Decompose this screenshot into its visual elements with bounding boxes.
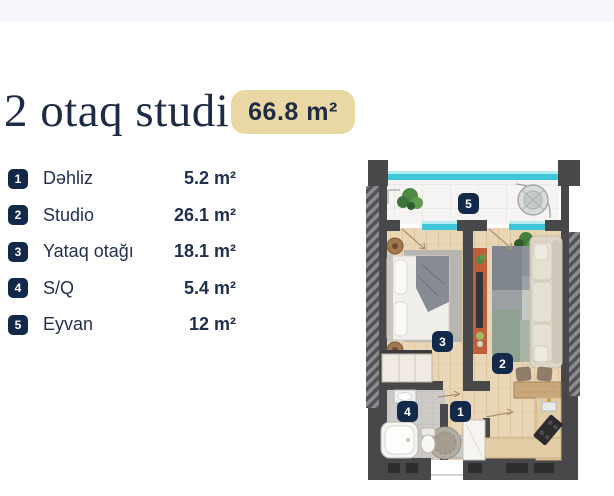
toilet	[421, 428, 435, 453]
entrance-threshold	[431, 474, 463, 476]
legend-area-2: 26.1 m²	[174, 205, 236, 226]
legend-row-yataq: 3 Yataq otağı 18.1 m²	[8, 241, 236, 262]
marker-eyvan: 5	[458, 193, 479, 214]
legend-area-5: 12 m²	[189, 314, 236, 335]
legend-label-1: Dəhliz	[43, 168, 93, 189]
floorplan: 5 3 2 4 1	[366, 160, 580, 480]
kitchen-sink	[542, 402, 556, 411]
legend-num-2: 2	[8, 205, 28, 225]
legend-area-3: 18.1 m²	[174, 241, 236, 262]
total-area-badge: 66.8 m²	[231, 90, 355, 134]
bed	[387, 254, 449, 342]
marker-sq: 4	[397, 401, 418, 422]
legend-area-1: 5.2 m²	[184, 168, 236, 189]
dining-table	[514, 382, 561, 398]
marker-yataq: 3	[432, 331, 453, 352]
legend-area-4: 5.4 m²	[184, 278, 236, 299]
legend-num-3: 3	[8, 242, 28, 262]
sofa	[530, 236, 562, 368]
svg-text:2: 2	[499, 357, 506, 371]
wardrobe	[382, 350, 432, 382]
legend-row-studio: 2 Studio 26.1 m²	[8, 205, 236, 226]
legend-num-1: 1	[8, 169, 28, 189]
legend-num-5: 5	[8, 315, 28, 335]
page-title: 2 otaq studio	[4, 84, 253, 138]
legend-row-sq: 4 S/Q 5.4 m²	[8, 278, 236, 299]
svg-text:4: 4	[404, 405, 411, 419]
legend-label-4: S/Q	[43, 278, 74, 299]
svg-text:1: 1	[457, 405, 464, 419]
bathtub	[381, 422, 418, 458]
legend-label-3: Yataq otağı	[43, 241, 134, 262]
legend-label-5: Eyvan	[43, 314, 93, 335]
hall-closet-door	[463, 420, 485, 460]
svg-text:3: 3	[439, 335, 446, 349]
legend-label-2: Studio	[43, 205, 94, 226]
top-band	[0, 0, 614, 21]
marker-studio: 2	[492, 353, 513, 374]
legend-row-dehliz: 1 Dəhliz 5.2 m²	[8, 168, 236, 189]
tv-console	[473, 248, 487, 354]
legend-row-eyvan: 5 Eyvan 12 m²	[8, 314, 236, 335]
faucet	[547, 398, 551, 402]
room-legend: 1 Dəhliz 5.2 m² 2 Studio 26.1 m² 3 Yataq…	[8, 168, 236, 351]
svg-text:5: 5	[465, 197, 472, 211]
nightstand-top	[387, 238, 403, 254]
legend-num-4: 4	[8, 278, 28, 298]
page: { "header": { "title": "2 otaq studio", …	[0, 0, 614, 496]
marker-dehliz: 1	[450, 401, 471, 422]
